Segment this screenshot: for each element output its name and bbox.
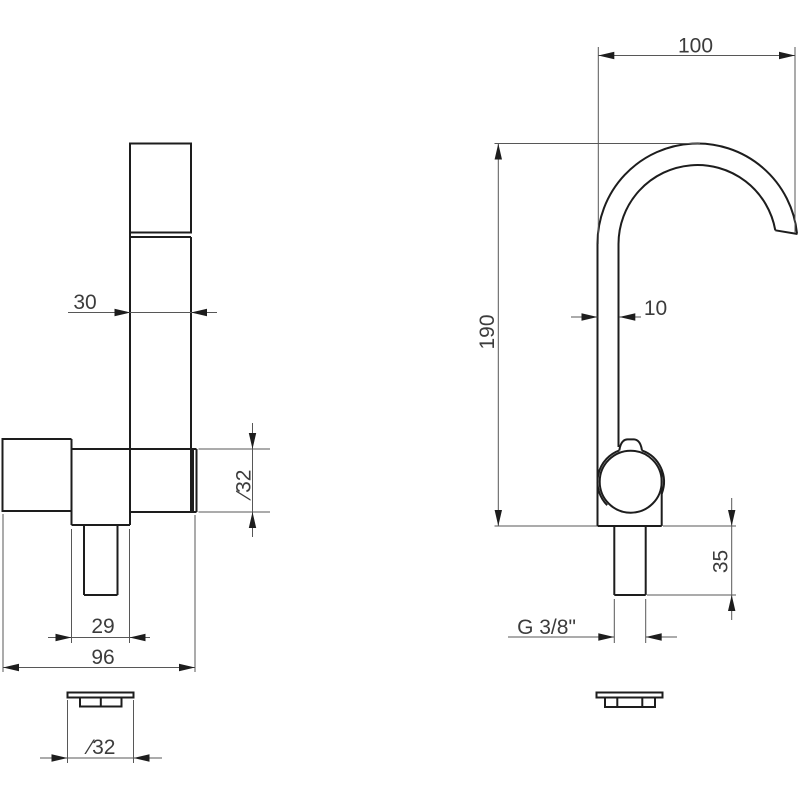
- technical-drawing-page: 30 ∕32 29 96 ∕32: [0, 0, 800, 800]
- dim-overall-length-label: 96: [91, 646, 114, 669]
- dim-valve-offset-label: 29: [91, 615, 114, 638]
- dim-shank-length-label: 35: [710, 550, 733, 573]
- technical-drawing-canvas: 30 ∕32 29 96 ∕32: [0, 0, 800, 800]
- dim-spout-tube-label: 10: [644, 297, 667, 320]
- dim-thread-label: G 3/8": [517, 616, 576, 639]
- dim-spout-reach-label: 100: [678, 35, 713, 58]
- dim-spout-height-label: 190: [476, 314, 499, 349]
- dim-body-diameter-label: ∕32: [233, 470, 256, 502]
- dim-spout-width-label: 30: [73, 291, 96, 314]
- dim-base-diameter-label: ∕32: [84, 736, 116, 759]
- drawing-background: [0, 0, 800, 800]
